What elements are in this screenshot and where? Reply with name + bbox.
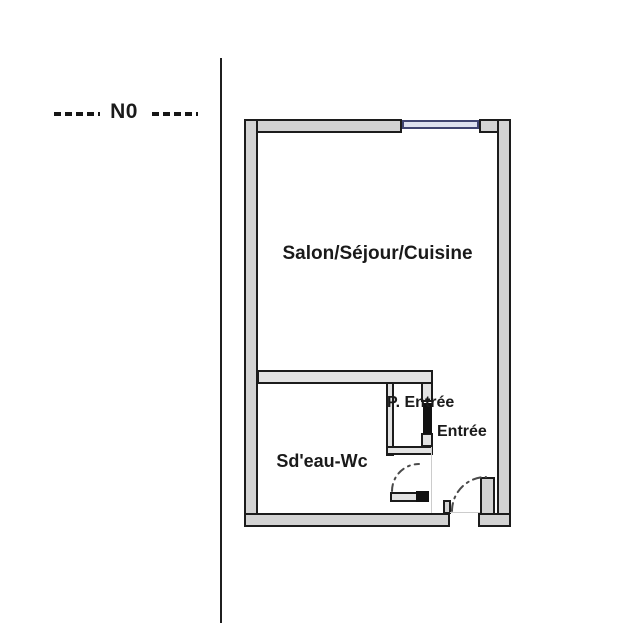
room-label-sdeau-wc: Sd'eau-Wc (262, 451, 382, 472)
bathroom-door-arc (392, 464, 419, 491)
door-swing-arcs (0, 0, 640, 643)
exterior-wall-bottom-right (478, 513, 511, 527)
bathroom-door-stub-wall (390, 492, 418, 502)
exterior-wall-top-left (244, 119, 402, 133)
level-dash-left (54, 112, 100, 116)
entrance-threshold-line (450, 512, 480, 513)
bathroom-door-block (416, 491, 429, 502)
room-label-placard-entree: P. Entrée (387, 394, 454, 412)
level-dash-right (152, 112, 198, 116)
level-label: N0 (98, 100, 150, 124)
entrance-door-leaf (480, 477, 495, 515)
interior-wall-salon-bottom (257, 370, 433, 384)
closet-wall-bottom (386, 446, 433, 455)
exterior-wall-right (497, 119, 511, 527)
closet-wall-right-lower (421, 433, 433, 447)
entree-floor-boundary-line (431, 447, 432, 513)
exterior-wall-bottom (244, 513, 450, 527)
exterior-wall-left (244, 119, 258, 527)
room-label-entree: Entrée (437, 423, 487, 441)
floor-plan-canvas: N0 Salon/Séjour/Cuisine Sd'eau-Wc P. Ent… (0, 0, 640, 643)
room-label-salon-sejour-cuisine: Salon/Séjour/Cuisine (244, 243, 511, 265)
vertical-divider-line (220, 58, 222, 623)
window (402, 120, 479, 129)
